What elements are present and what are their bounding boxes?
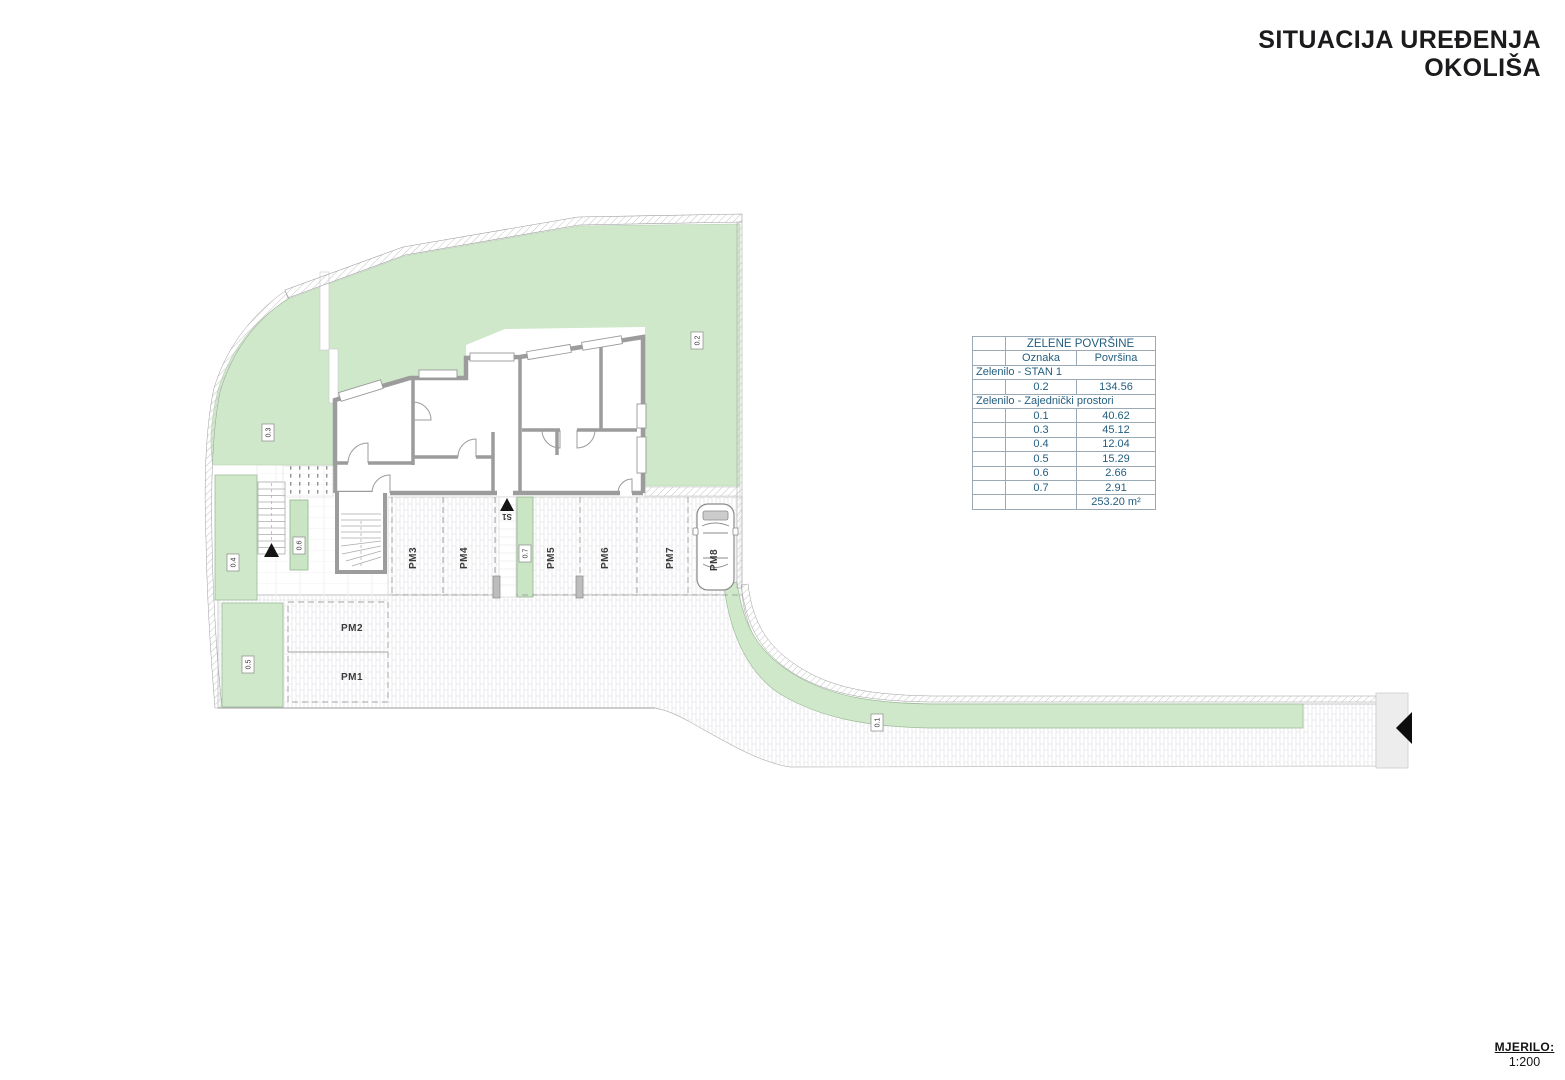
table-cell bbox=[1006, 495, 1077, 509]
table-row: 0.3 45.12 bbox=[973, 423, 1156, 437]
zone-label-0-3: 0.3 bbox=[262, 424, 274, 441]
sheet-title-line2: OKOLIŠA bbox=[1258, 54, 1541, 82]
scale-value: 1:200 bbox=[1452, 1055, 1565, 1069]
zone-label-0-4: 0.4 bbox=[227, 554, 239, 571]
bollard bbox=[493, 576, 500, 598]
table-cell: 0.6 bbox=[1006, 466, 1077, 480]
pm8-label: PM8 bbox=[709, 549, 720, 571]
sheet-title: SITUACIJA UREĐENJA OKOLIŠA bbox=[1258, 26, 1541, 82]
table-cell: 45.12 bbox=[1077, 423, 1156, 437]
section-label: Zelenilo - Zajednički prostori bbox=[973, 394, 1156, 408]
table-cell bbox=[973, 337, 1006, 351]
table-cell: 0.5 bbox=[1006, 452, 1077, 466]
table-cell: 0.7 bbox=[1006, 480, 1077, 494]
sheet-title-line1: SITUACIJA UREĐENJA bbox=[1258, 26, 1541, 54]
pm6-label: PM6 bbox=[600, 547, 611, 569]
zone-label-0-6: 0.6 bbox=[293, 537, 305, 554]
table-row: 0.6 2.66 bbox=[973, 466, 1156, 480]
retaining-wall bbox=[329, 349, 338, 403]
table-cell bbox=[973, 380, 1006, 394]
table-title: ZELENE POVRŠINE bbox=[1006, 337, 1156, 351]
table-cell bbox=[973, 351, 1006, 365]
table-cell bbox=[973, 408, 1006, 422]
external-staircase bbox=[258, 482, 285, 557]
total-area-value: 253.20 m² bbox=[1077, 495, 1156, 509]
site-plan-sheet: S1 PM2 PM1 PM3 PM4 PM5 PM6 PM7 PM8 0.3 0… bbox=[0, 0, 1565, 1080]
table-row: 0.7 2.91 bbox=[973, 480, 1156, 494]
table-row: 0.4 12.04 bbox=[973, 437, 1156, 451]
table-section-row: Zelenilo - Zajednički prostori bbox=[973, 394, 1156, 408]
col-header-povrsina: Površina bbox=[1077, 351, 1156, 365]
table-cell bbox=[973, 423, 1006, 437]
table-cell bbox=[973, 480, 1006, 494]
table-section-row: Zelenilo - STAN 1 bbox=[973, 365, 1156, 379]
site-plan-drawing: S1 PM2 PM1 PM3 PM4 PM5 PM6 PM7 PM8 0.3 0… bbox=[0, 0, 1565, 1080]
stair-s1-label: S1 bbox=[502, 512, 512, 521]
scale-block: MJERILO: 1:200 bbox=[1452, 1040, 1565, 1069]
table-cell: 0.1 bbox=[1006, 408, 1077, 422]
table-cell bbox=[973, 495, 1006, 509]
col-header-oznaka: Oznaka bbox=[1006, 351, 1077, 365]
svg-text:0.4: 0.4 bbox=[231, 558, 238, 568]
pm4-label: PM4 bbox=[459, 547, 470, 569]
table-row: 0.1 40.62 bbox=[973, 408, 1156, 422]
table-cell: 134.56 bbox=[1077, 380, 1156, 394]
section-label: Zelenilo - STAN 1 bbox=[973, 365, 1156, 379]
table-row: 0.2 134.56 bbox=[973, 380, 1156, 394]
site-entrance bbox=[1376, 693, 1412, 768]
svg-text:0.1: 0.1 bbox=[875, 718, 882, 728]
pm7-label: PM7 bbox=[665, 547, 676, 569]
zone-label-0-1: 0.1 bbox=[871, 714, 883, 731]
table-header-row: Oznaka Površina bbox=[973, 351, 1156, 365]
svg-text:0.3: 0.3 bbox=[266, 428, 273, 438]
gravel-area bbox=[283, 466, 333, 497]
car-icon bbox=[693, 504, 738, 590]
table-cell: 2.66 bbox=[1077, 466, 1156, 480]
zone-label-0-5: 0.5 bbox=[242, 656, 254, 673]
table-cell: 0.4 bbox=[1006, 437, 1077, 451]
zone-label-0-2: 0.2 bbox=[691, 332, 703, 349]
table-title-row: ZELENE POVRŠINE bbox=[973, 337, 1156, 351]
svg-text:0.7: 0.7 bbox=[523, 549, 530, 559]
table-cell bbox=[973, 452, 1006, 466]
green-areas-legend: ZELENE POVRŠINE Oznaka Površina Zelenilo… bbox=[972, 336, 1156, 510]
internal-staircase bbox=[337, 492, 385, 572]
svg-text:0.6: 0.6 bbox=[297, 541, 304, 551]
table-cell bbox=[973, 437, 1006, 451]
pm3-label: PM3 bbox=[408, 547, 419, 569]
pm1-label: PM1 bbox=[341, 672, 363, 683]
table-cell: 0.3 bbox=[1006, 423, 1077, 437]
svg-text:0.2: 0.2 bbox=[695, 336, 702, 346]
table-cell: 2.91 bbox=[1077, 480, 1156, 494]
table-cell: 40.62 bbox=[1077, 408, 1156, 422]
scale-label: MJERILO: bbox=[1452, 1040, 1565, 1054]
zone-label-0-7: 0.7 bbox=[519, 545, 531, 562]
bollard bbox=[576, 576, 583, 598]
table-row: 0.5 15.29 bbox=[973, 452, 1156, 466]
table-total-row: 253.20 m² bbox=[973, 495, 1156, 509]
table-cell: 12.04 bbox=[1077, 437, 1156, 451]
pm5-label: PM5 bbox=[546, 547, 557, 569]
pm2-label: PM2 bbox=[341, 623, 363, 634]
walkway-s1: S1 bbox=[499, 497, 516, 597]
table-cell bbox=[973, 466, 1006, 480]
svg-text:0.5: 0.5 bbox=[246, 660, 253, 670]
table-cell: 0.2 bbox=[1006, 380, 1077, 394]
table-cell: 15.29 bbox=[1077, 452, 1156, 466]
